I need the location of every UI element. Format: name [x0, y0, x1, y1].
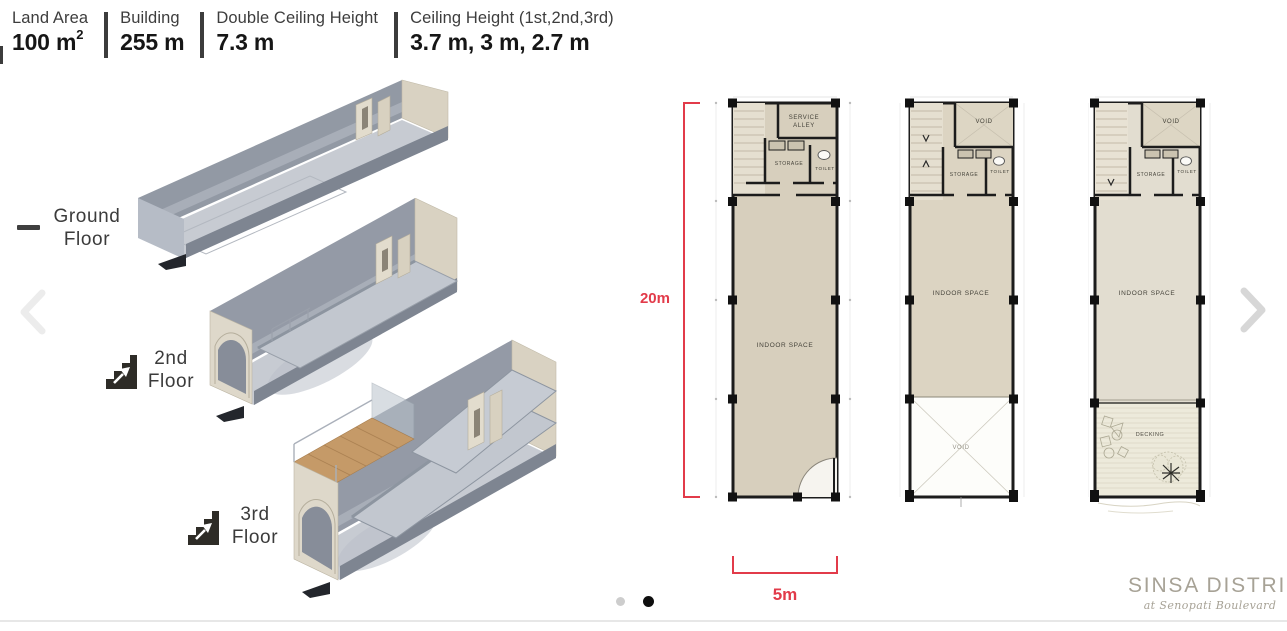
spec-land-area: Land Area 100 m2 [8, 9, 104, 56]
room-label-void-bottom: VOID [952, 445, 969, 451]
ground-floor-dash-icon [17, 225, 40, 230]
spec-value: 100 m2 [12, 29, 88, 56]
height-dimension-bracket [684, 103, 700, 497]
room-label-storage: STORAGE [775, 161, 804, 167]
isometric-render-3rd-floor [262, 322, 567, 607]
toilet-fixture [1181, 157, 1192, 165]
brand-name: SINSA DISTRICT [1128, 574, 1287, 598]
superscript: 2 [76, 27, 83, 42]
branding: SINSA DISTRICT at Senopati Boulevard [1128, 574, 1287, 612]
carousel-prev-button[interactable] [14, 286, 52, 338]
floor-plan-ground: SERVICE ALLEY STORAGE TOILET INDOOR SPAC… [628, 95, 880, 620]
spec-label: Building [120, 9, 184, 28]
width-dimension-bracket [733, 556, 837, 573]
room-label-void: VOID [1162, 119, 1179, 125]
room-label-indoor-space: INDOOR SPACE [1119, 290, 1176, 297]
chevron-right-icon [1234, 284, 1272, 336]
spec-label: Ceiling Height (1st,2nd,3rd) [410, 9, 614, 28]
spec-double-ceiling: Double Ceiling Height 7.3 m [204, 9, 394, 56]
spec-header: Land Area 100 m2 Building 255 m Double C… [8, 9, 630, 58]
property-floor-slide: Land Area 100 m2 Building 255 m Double C… [0, 0, 1287, 631]
height-dimension-label: 20m [640, 290, 670, 307]
stairs-area [910, 103, 943, 200]
svg-text:ALLEY: ALLEY [793, 123, 815, 129]
carousel-dot-1[interactable] [616, 597, 625, 606]
spec-label: Land Area [12, 9, 88, 28]
spec-building: Building 255 m [108, 9, 200, 56]
bottom-divider [0, 620, 1287, 622]
room-label-indoor-space: INDOOR SPACE [757, 342, 814, 349]
room-label-toilet: TOILET [990, 169, 1010, 174]
spec-value: 255 m [120, 29, 184, 56]
carousel-dot-2-active[interactable] [643, 596, 654, 607]
label-3rd-floor: 3rd Floor [222, 503, 288, 549]
stairs-up-icon [104, 351, 138, 391]
entrance-marker [216, 406, 244, 422]
carousel-next-button[interactable] [1234, 284, 1272, 336]
room-label-void: VOID [975, 119, 992, 125]
toilet-fixture [818, 151, 830, 160]
room-label-storage: STORAGE [1137, 172, 1166, 178]
stairs-area [733, 103, 765, 195]
width-dimension-label: 5m [773, 585, 798, 604]
left-edge-divider [0, 46, 3, 64]
spec-value: 3.7 m, 3 m, 2.7 m [410, 29, 614, 56]
floor-plan-3rd: VOID STORAGE TOILET INDOOR SPACE DECKING [1088, 95, 1223, 530]
room-label-storage: STORAGE [950, 172, 979, 178]
stairs-area [1095, 103, 1128, 200]
room-label-decking: DECKING [1136, 432, 1165, 438]
room-label-service-alley: SERVICE [789, 115, 819, 121]
label-ground-floor: Ground Floor [48, 205, 126, 251]
label-2nd-floor: 2nd Floor [140, 347, 202, 393]
spec-ceiling-heights: Ceiling Height (1st,2nd,3rd) 3.7 m, 3 m,… [398, 9, 630, 56]
room-label-toilet: TOILET [815, 166, 835, 171]
toilet-fixture [994, 157, 1005, 165]
room-label-indoor-space: INDOOR SPACE [933, 290, 990, 297]
chevron-left-icon [14, 286, 52, 338]
floor-plan-2nd: VOID STORAGE TOILET INDOOR SPACE VOID [898, 95, 1028, 520]
stairs-up-icon [186, 507, 220, 547]
entrance-marker [302, 582, 330, 598]
brand-tagline: at Senopati Boulevard [1128, 599, 1287, 612]
room-label-toilet: TOILET [1177, 169, 1197, 174]
spec-label: Double Ceiling Height [216, 9, 378, 28]
spec-value: 7.3 m [216, 29, 378, 56]
